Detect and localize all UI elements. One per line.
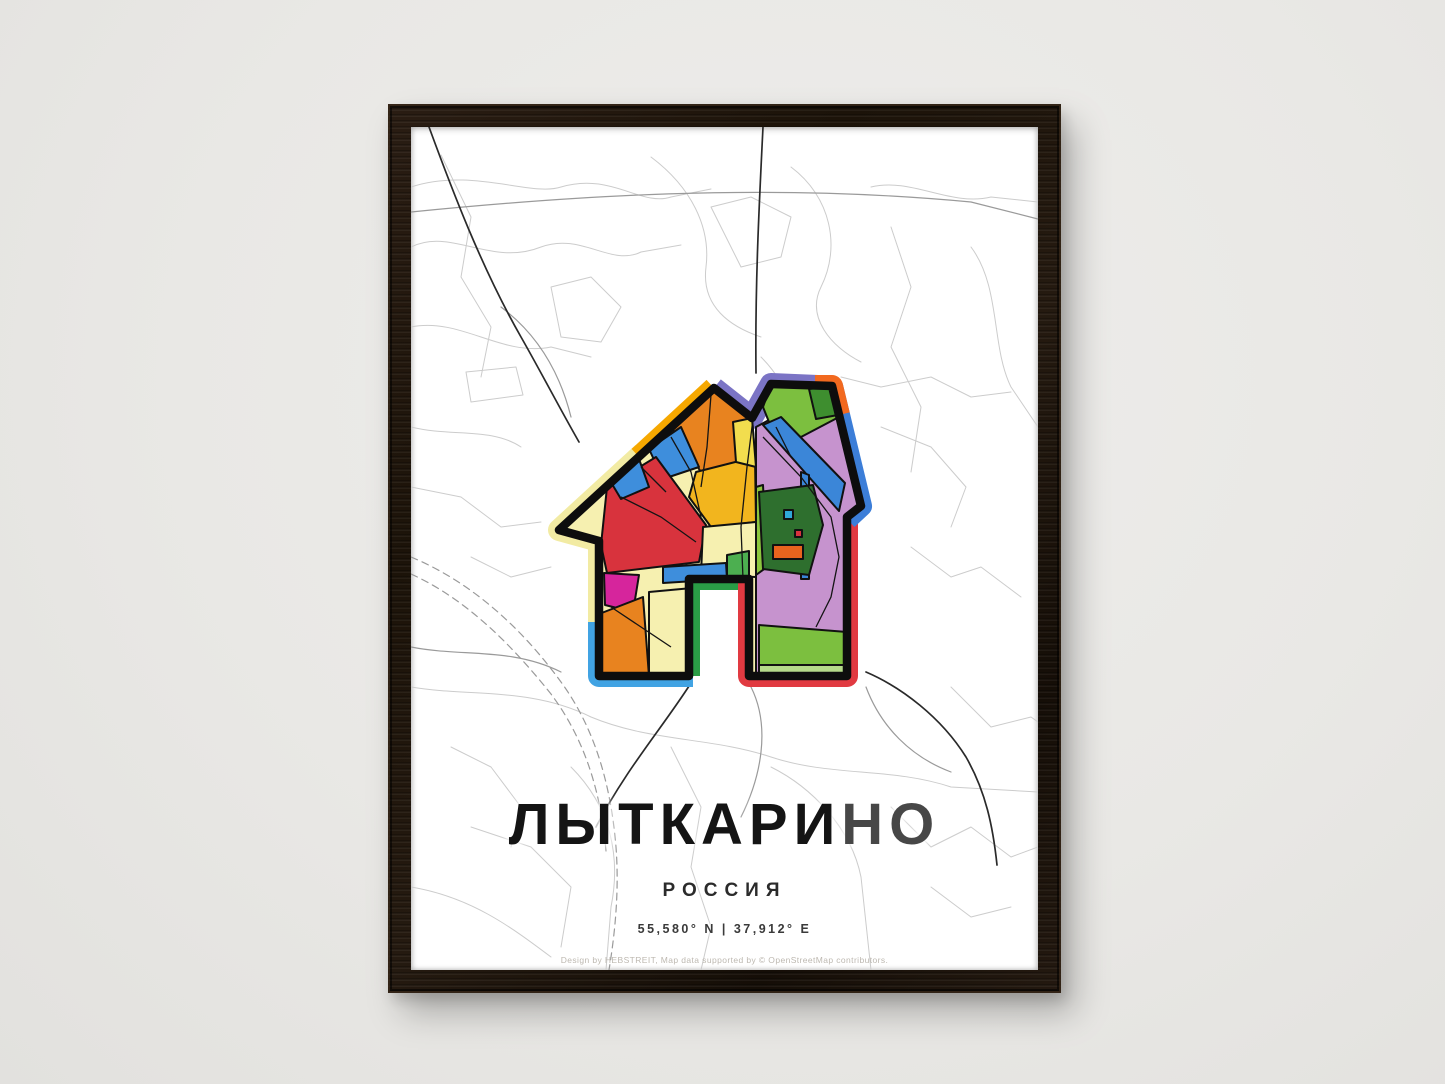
railway-dashed-line	[411, 557, 617, 970]
house-map-icon	[559, 373, 861, 676]
map-poster: ЛЫТКАРИНО РОССИЯ 55,580° N | 37,912° E D…	[411, 127, 1038, 970]
credit-line: Design by HEBSTREIT, Map data supported …	[411, 955, 1038, 965]
scene-wall: { "scene": { "wall_color": "#e9e8e5", "f…	[0, 0, 1445, 1084]
picture-frame: ЛЫТКАРИНО РОССИЯ 55,580° N | 37,912° E D…	[388, 104, 1061, 993]
poster-canvas	[411, 127, 1038, 970]
icon-mosaic	[559, 384, 861, 676]
